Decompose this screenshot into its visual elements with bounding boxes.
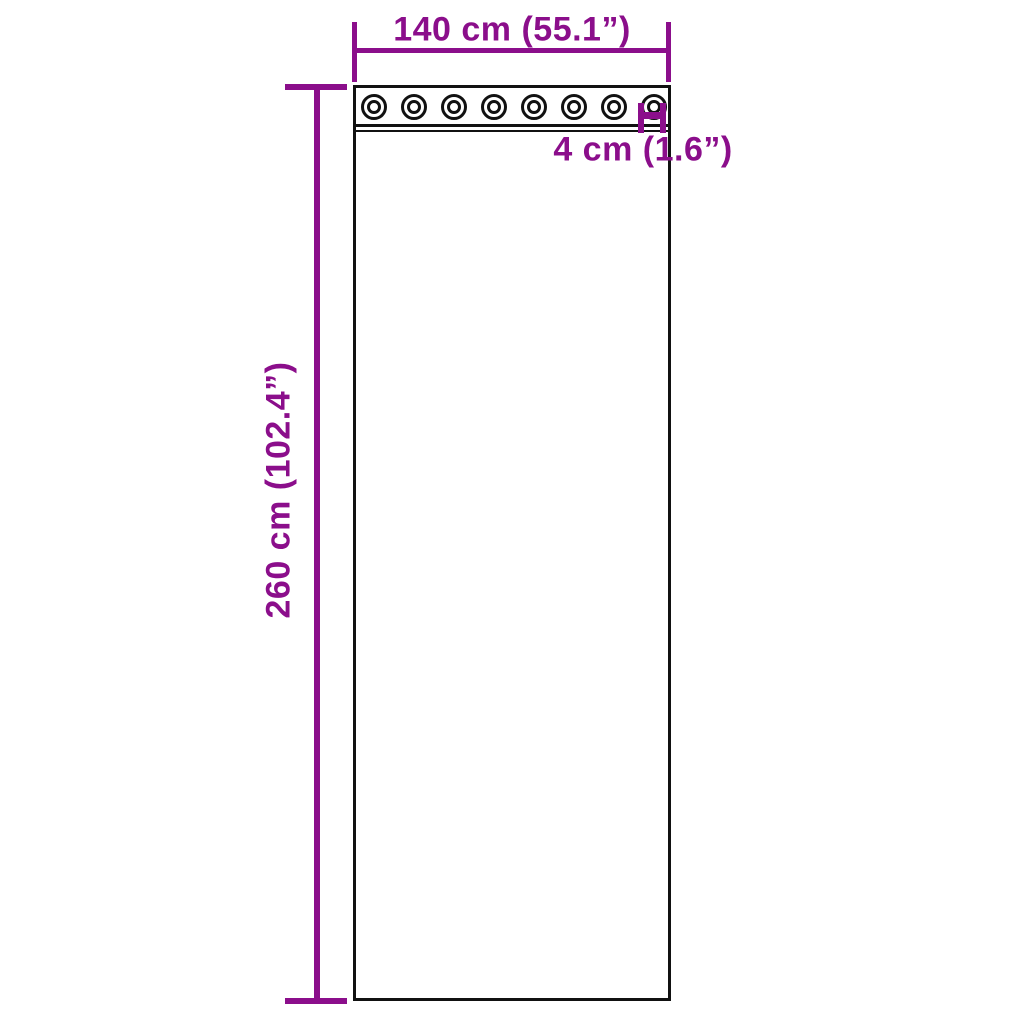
grommet-icon [361,94,387,120]
grommet-band-seam-line [356,124,668,127]
height-dimension-cap-bottom [285,998,347,1004]
grommet-icon [401,94,427,120]
grommet-inner-ring [567,100,581,114]
height-dimension-label: 260 cm (102.4”) [260,362,299,619]
grommet-row [361,94,667,120]
grommet-inner-ring [407,100,421,114]
grommet-inner-ring [447,100,461,114]
grommet-inner-ring [527,100,541,114]
height-dimension-line [314,85,320,1001]
grommet-size-bracket-bar [638,112,666,119]
height-dimension-cap-top [285,84,347,90]
width-dimension-line [353,48,671,53]
width-dimension-tick-left [352,22,357,82]
grommet-diameter-label: 4 cm (1.6”) [553,131,732,170]
grommet-inner-ring [607,100,621,114]
curtain-dimension-diagram: 140 cm (55.1”) 260 cm (102.4”) 4 cm (1.6… [0,0,1024,1024]
grommet-icon [521,94,547,120]
width-dimension-tick-right [666,22,671,82]
curtain-panel [353,85,671,1001]
grommet-inner-ring [367,100,381,114]
width-dimension-label: 140 cm (55.1”) [393,11,631,50]
grommet-icon [561,94,587,120]
grommet-inner-ring [487,100,501,114]
grommet-icon [441,94,467,120]
grommet-icon [481,94,507,120]
grommet-icon [601,94,627,120]
